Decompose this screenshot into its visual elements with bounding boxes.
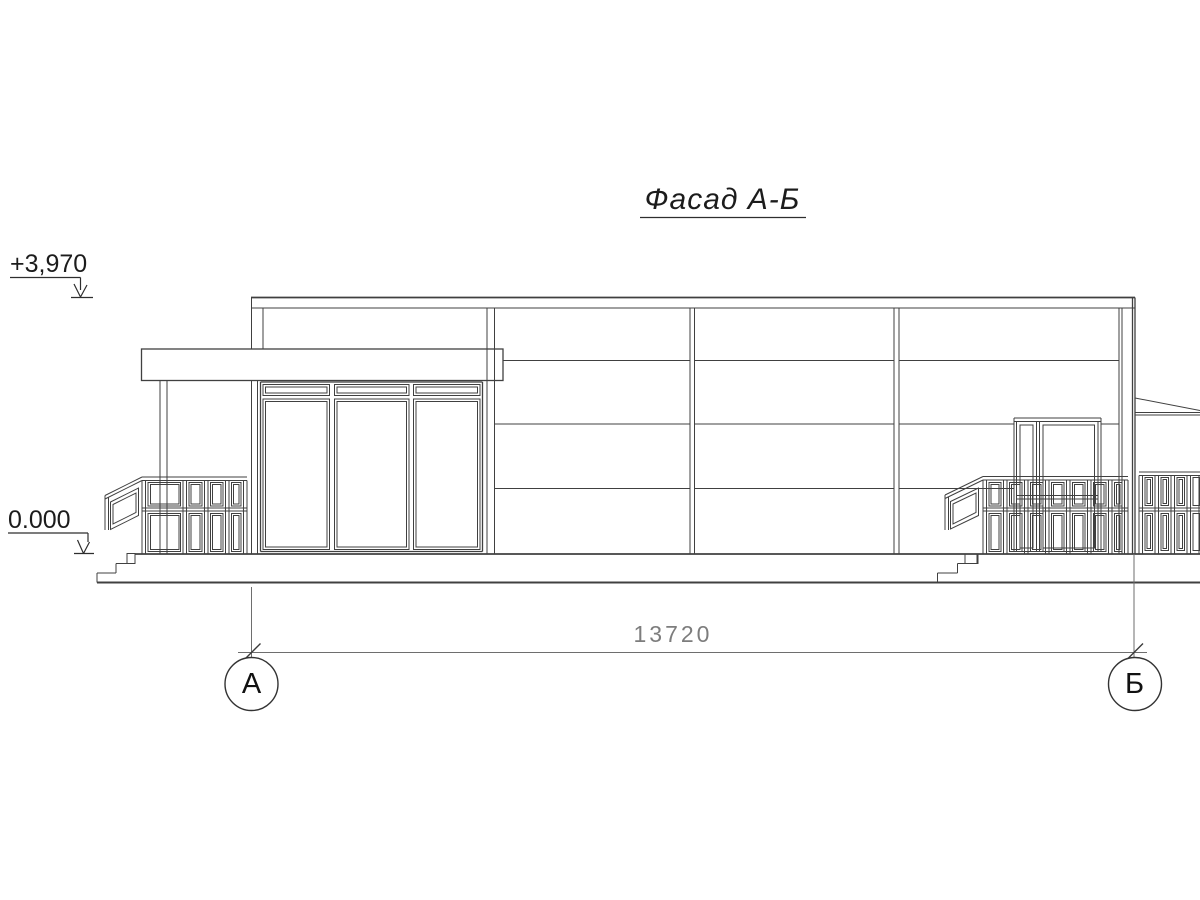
side-awning — [1135, 398, 1200, 415]
elevation-value-ground: 0.000 — [8, 506, 71, 535]
canopy — [142, 349, 504, 381]
right-stairs — [938, 554, 978, 583]
left-railing — [105, 477, 247, 564]
elevation-mark-top — [10, 278, 93, 298]
axis-circles — [225, 658, 1162, 711]
axis-label-a: А — [225, 657, 278, 710]
elevation-mark-zero — [8, 533, 94, 554]
dimension-value: 13720 — [597, 621, 749, 648]
facade-drawing-sheet: Фасад А-Б +3,970 0.000 13720 А Б — [0, 0, 1200, 900]
far-right-railing — [1139, 472, 1200, 554]
parapet — [251, 298, 1135, 309]
axis-label-b: Б — [1108, 657, 1161, 710]
storefront-glazing — [261, 382, 483, 552]
drawing-title: Фасад А-Б — [600, 183, 845, 217]
elevation-value-top: +3,970 — [10, 250, 87, 279]
left-stairs — [97, 554, 135, 583]
facade-line-drawing — [0, 0, 1200, 900]
wall-columns — [252, 298, 1136, 555]
canopy-column — [160, 381, 167, 555]
base-platform — [97, 554, 1200, 583]
